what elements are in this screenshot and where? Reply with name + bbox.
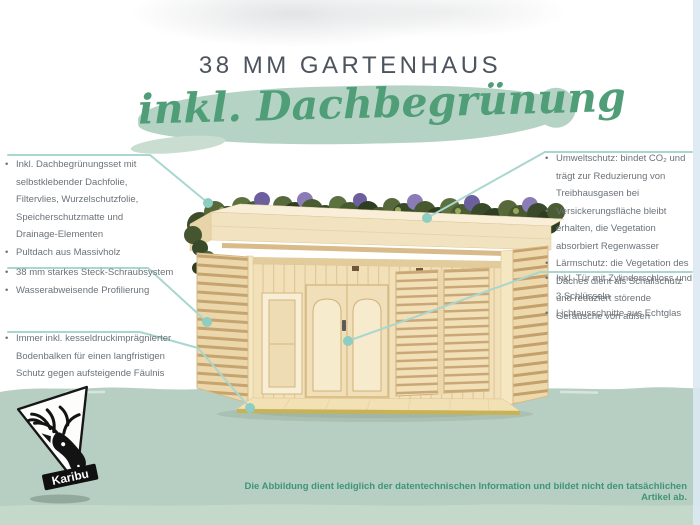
callout-list: 38 mm starkes Steck-Schraubsystem Wasser…: [5, 264, 177, 299]
callout-left-foundation: Immer inkl. kesseldruckimprägnierter Bod…: [5, 330, 175, 383]
callout-item: Versickerungsfläche bleibt erhalten, die…: [545, 203, 697, 256]
garden-house: [197, 246, 548, 415]
callout-list: Inkl. Dachbegrünungsset mit selbstkleben…: [5, 156, 167, 261]
callout-right-door: Inkl. Tür mit Zylinderschloss und 3 Schl…: [545, 270, 695, 323]
footer-disclaimer: Die Abbildung dient lediglich der datent…: [240, 481, 687, 503]
callout-item: Lichtausschnitte aus Echtglas: [545, 305, 695, 323]
karibu-logo: Karibu: [10, 384, 114, 498]
callout-left-walls: 38 mm starkes Steck-Schraubsystem Wasser…: [5, 264, 177, 299]
infographic-page: 38 MM GARTENHAUS inkl. Dachbegrünung: [0, 0, 700, 525]
callout-item: Wasserabweisende Profilierung: [5, 282, 177, 300]
right-edge-strip: [693, 0, 700, 525]
callout-list: Inkl. Tür mit Zylinderschloss und 3 Schl…: [545, 270, 695, 323]
callout-item: Inkl. Dachbegrünungsset mit selbstkleben…: [5, 156, 167, 244]
callout-item: Immer inkl. kesseldruckimprägnierter Bod…: [5, 330, 175, 383]
callout-list: Immer inkl. kesseldruckimprägnierter Bod…: [5, 330, 175, 383]
callout-left-roofset: Inkl. Dachbegrünungsset mit selbstkleben…: [5, 156, 167, 261]
callout-item: Umweltschutz: bindet CO₂ und trägt zur R…: [545, 150, 697, 203]
callout-item: Pultdach aus Massivholz: [5, 244, 167, 262]
callout-item: 38 mm starkes Steck-Schraubsystem: [5, 264, 177, 282]
callout-item: Inkl. Tür mit Zylinderschloss und 3 Schl…: [545, 270, 695, 305]
